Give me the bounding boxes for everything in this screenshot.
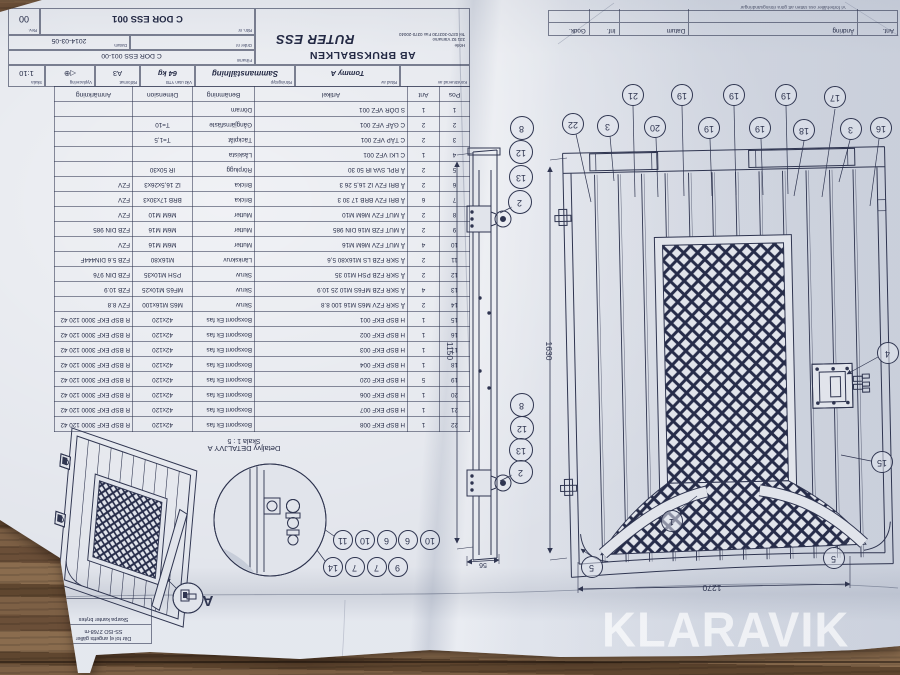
parts-cell: 42x120 <box>133 357 193 372</box>
parts-cell: Å MUT FZV M6M M16 <box>255 237 408 252</box>
address-line: 331 92 Värnamo <box>370 37 465 43</box>
callout-number: 5 <box>831 554 836 563</box>
drawing-type-label: Ritningstyp <box>271 80 292 85</box>
address-line: Tel 0370-303730 Fax 0370-20040 <box>370 32 465 38</box>
parts-cell: H BSP EKF 007 <box>255 402 408 417</box>
callout-balloon: 8 <box>510 116 534 140</box>
parts-cell: 22 <box>440 417 470 432</box>
parts-cell: Låskista <box>193 147 255 162</box>
parts-cell: 1 <box>408 387 440 402</box>
hinge-pin-hardware <box>555 209 577 495</box>
parts-table-body: 221H BSP EKF 008Boxspont Ek fas42x120R B… <box>55 87 470 432</box>
parts-cell <box>55 147 133 162</box>
detail-view-circle <box>214 464 326 576</box>
paper-wrap: 221H BSP EKF 008Boxspont Ek fas42x120R B… <box>0 0 900 675</box>
parts-cell: Skruv <box>193 282 255 297</box>
callout-balloon: 7 <box>367 557 387 577</box>
revision-empty-cell <box>589 9 619 22</box>
drawing-no-label: Ritn. nr <box>238 28 252 33</box>
callout-balloon: 2 <box>509 460 533 484</box>
parts-cell: FZB DIN 985 <box>55 222 133 237</box>
callout-balloon: 14 <box>323 557 343 577</box>
parts-cell: Boxspont Ek fas <box>193 357 255 372</box>
hinge-assembly-upper <box>467 206 511 232</box>
parts-cell: M6S M16x100 <box>133 297 193 312</box>
parts-cell: H BSP EKF 004 <box>255 357 408 372</box>
drawing-sheet: 221H BSP EKF 008Boxspont Ek fas42x120R B… <box>0 0 900 675</box>
parts-cell: FZB 5.6 DIN444F <box>55 252 133 267</box>
tolerance-note: Där tol ej angetts gäller SS-ISO 2768-m <box>56 624 151 643</box>
parts-cell: H BSP EKF 020 <box>255 372 408 387</box>
parts-cell: M16X80 <box>133 252 193 267</box>
parts-cell: 19 <box>440 372 470 387</box>
parts-cell: FZV 8.8 <box>55 297 133 312</box>
designed-by-label: Konstruerad av <box>438 80 467 85</box>
filename-value: C DOR ESS 001-00 <box>9 52 254 59</box>
parts-cell: 1 <box>408 402 440 417</box>
parts-cell: 9 <box>440 222 470 237</box>
callout-balloon: 19 <box>671 84 693 106</box>
parts-cell: 4 <box>440 147 470 162</box>
parts-cell: 1 <box>440 102 470 117</box>
parts-cell: 2 <box>408 267 440 282</box>
lock-box <box>812 363 870 408</box>
callout-number: 19 <box>755 124 765 133</box>
revision-header-cell: Inf. <box>589 22 619 35</box>
parts-cell: Boxspont Ek fas <box>193 312 255 327</box>
callout-balloon: 11 <box>333 530 353 550</box>
parts-header-cell: Ant <box>408 87 440 102</box>
parts-cell: 12 <box>440 267 470 282</box>
callout-number: 12 <box>517 424 527 433</box>
callout-number: 10 <box>360 536 370 545</box>
callout-number: 12 <box>516 148 526 157</box>
parts-cell: M6M M16 <box>133 222 193 237</box>
scale-value: 1:10 <box>9 69 44 78</box>
revision-header-cell: Godk. <box>549 22 589 35</box>
parts-cell: IR 50x30 <box>133 162 193 177</box>
parts-cell: Å BRI FZV BRB 17 30 3 <box>255 192 408 207</box>
rev-value: 00 <box>9 14 39 24</box>
parts-table: 221H BSP EKF 008Boxspont Ek fas42x120R B… <box>54 86 470 432</box>
parts-row: 92Å MUT FZB M16 DIN 985MutterM6M M16FZB … <box>55 222 470 237</box>
parts-cell: 11 <box>440 252 470 267</box>
weight-value: 64 kg <box>141 69 194 78</box>
edge-note: Skarpa kanter brytes <box>56 613 151 624</box>
parts-cell: M6M M16 <box>133 237 193 252</box>
parts-row: 76Å BRI FZV BRB 17 30 3BrickaBRB 17x30x3… <box>55 192 470 207</box>
callout-number: 16 <box>876 124 886 133</box>
parts-and-title-block: 221H BSP EKF 008Boxspont Ek fas42x120R B… <box>8 8 470 432</box>
callout-number: 18 <box>799 126 809 135</box>
parts-cell <box>55 132 133 147</box>
format-label: Ritformat <box>120 80 137 85</box>
hinge-mount-plate <box>749 148 855 167</box>
parts-row: 82Å MUT FZV M6M M10MutterM6M M10FZV <box>55 207 470 222</box>
parts-row: 11S DÖR VFZ 001Dörram <box>55 102 470 117</box>
parts-row: 22C GÅF VFZ 001GångjärnsfästeT=10 <box>55 117 470 132</box>
callout-balloon: 13 <box>509 165 533 189</box>
parts-row: 181H BSP EKF 004Boxspont Ek fas42x120R B… <box>55 357 470 372</box>
parts-cell: IZ 16,5x26x3 <box>133 177 193 192</box>
parts-row: 104Å MUT FZV M6M M16MutterM6M M16FZV <box>55 237 470 252</box>
parts-cell: 1 <box>408 147 440 162</box>
parts-cell: 6 <box>440 177 470 192</box>
photo-of-technical-drawing: 221H BSP EKF 008Boxspont Ek fas42x120R B… <box>0 0 900 675</box>
dimension-post-width: 56 <box>472 561 494 568</box>
gate-front-view <box>554 147 894 578</box>
callout-balloon: 12 <box>509 140 533 164</box>
parts-cell: FZV <box>55 237 133 252</box>
parts-cell: BRB 17x30x3 <box>133 192 193 207</box>
parts-cell: T=10 <box>133 117 193 132</box>
parts-row: 151H BSP EKF 001Boxspont Ek fas42x120R B… <box>55 312 470 327</box>
callout-number: 7 <box>352 563 357 572</box>
parts-cell: Boxspont Ek fas <box>193 342 255 357</box>
parts-cell: 21 <box>440 402 470 417</box>
klaravik-watermark: KLARAVIK <box>602 601 849 658</box>
parts-row: 32C TÄP VFZ 001TäckplåtT=1,5 <box>55 132 470 147</box>
callout-number: 19 <box>729 91 739 100</box>
callout-number: 2 <box>518 468 523 477</box>
parts-cell: 2 <box>408 222 440 237</box>
revision-table: Ant.ÄndringDatumInf.Godk. <box>548 10 898 36</box>
parts-cell: 1 <box>408 342 440 357</box>
callout-number: 8 <box>519 401 524 410</box>
callout-balloon: 1 <box>661 510 683 532</box>
callout-balloon: 4 <box>877 342 899 364</box>
order-no-label: Order nr <box>236 43 252 48</box>
callout-number: 9 <box>395 563 400 572</box>
parts-cell: 14 <box>440 297 470 312</box>
parts-header-cell: Pos <box>440 87 470 102</box>
parts-cell: M6M M10 <box>133 207 193 222</box>
parts-cell: R BSP EKF 3000 120 42 <box>55 402 133 417</box>
projection-symbol-icon: ◁⊕ <box>46 69 94 78</box>
parts-header-cell: Anmärkning <box>55 87 133 102</box>
parts-cell: Å SKR FZB MF6S M10 25 10.9 <box>255 282 408 297</box>
parts-cell: Boxspont Ek fas <box>193 327 255 342</box>
callout-balloon: 20 <box>644 116 666 138</box>
lattice-mesh <box>663 243 789 483</box>
callout-number: 6 <box>405 536 410 545</box>
parts-cell: C LKI VFZ 001 <box>255 147 408 162</box>
callout-number: 19 <box>781 91 791 100</box>
callout-number: 10 <box>425 536 435 545</box>
callout-balloon: 8 <box>510 393 534 417</box>
parts-cell: Å MUT FZV M6M M10 <box>255 207 408 222</box>
callout-balloon: 5 <box>581 556 603 578</box>
parts-cell: 1 <box>408 357 440 372</box>
parts-row: 142Å SKR FZV M6S M16 100 8.8SkruvM6S M16… <box>55 297 470 312</box>
parts-cell: Skruv <box>193 297 255 312</box>
parts-cell: 42x120 <box>133 402 193 417</box>
parts-cell: 4 <box>408 237 440 252</box>
callout-number: 13 <box>516 173 526 182</box>
callout-balloon: 19 <box>723 84 745 106</box>
parts-cell: Boxspont Ek fas <box>193 372 255 387</box>
parts-cell: 2 <box>408 297 440 312</box>
rev-label: Rev. <box>28 28 37 33</box>
parts-cell: Mutter <box>193 207 255 222</box>
parts-cell: 20 <box>440 387 470 402</box>
parts-cell: 1 <box>408 102 440 117</box>
callout-balloon: 21 <box>622 84 644 106</box>
callout-number: 3 <box>605 122 610 131</box>
parts-row: 161H BSP EKF 002Boxspont Ek fas42x120R B… <box>55 327 470 342</box>
parts-cell: 2 <box>408 132 440 147</box>
parts-cell: C TÄP VFZ 001 <box>255 132 408 147</box>
parts-cell: Å SKR FZV M6S M16 100 8.8 <box>255 297 408 312</box>
parts-cell: 5 <box>440 162 470 177</box>
callout-balloon: 10 <box>355 530 375 550</box>
drawing-title: RUTER ESS <box>260 32 370 47</box>
callout-number: 21 <box>628 91 638 100</box>
revision-note: Vi förbehåller oss rätten att göra ritni… <box>688 1 898 9</box>
callout-number: 8 <box>519 124 524 133</box>
dimension-leaf-height: 1150 <box>445 331 455 371</box>
revision-empty-cell <box>549 9 589 22</box>
parts-cell: Å SKR FZB LS M16X80 5,6 <box>255 252 408 267</box>
parts-cell: Bricka <box>193 192 255 207</box>
callout-balloon: 12 <box>510 416 534 440</box>
parts-cell: S DÖR VFZ 001 <box>255 102 408 117</box>
parts-header-cell: Artikel <box>255 87 408 102</box>
parts-cell <box>55 102 133 117</box>
callout-balloon: 22 <box>562 113 584 135</box>
parts-row: 41C LKI VFZ 001Låskista <box>55 147 470 162</box>
parts-cell: R BSP EKF 3000 120 42 <box>55 342 133 357</box>
revision-header-cell: Ändring <box>688 22 857 35</box>
parts-row: 122Å SKR FZB PSH M10 35SkruvPSH M10x35FZ… <box>55 267 470 282</box>
parts-cell: 42x120 <box>133 327 193 342</box>
parts-cell: 42x120 <box>133 417 193 432</box>
dimension-gate-width: 1270 <box>692 583 732 593</box>
parts-cell: PSH M10x35 <box>133 267 193 282</box>
parts-cell <box>133 147 193 162</box>
dimension-gate-height: 1630 <box>544 331 554 371</box>
parts-cell: 2 <box>408 162 440 177</box>
parts-row: 171H BSP EKF 003Boxspont Ek fas42x120R B… <box>55 342 470 357</box>
parts-cell: 6 <box>408 192 440 207</box>
gate-profile-view <box>467 148 511 560</box>
callout-number: 3 <box>848 125 853 134</box>
parts-row: 134Å SKR FZB MF6S M10 25 10.9SkruvMF6S M… <box>55 282 470 297</box>
callout-number: 1 <box>669 517 674 526</box>
callout-number: 6 <box>384 536 389 545</box>
parts-cell: Rörplugg <box>193 162 255 177</box>
revision-header-cell: Ant. <box>857 22 897 35</box>
parts-row: 62Å BRI FZV IZ 16,5 26 3BrickaIZ 16,5x26… <box>55 177 470 192</box>
view-placement-label: Vyplacering <box>70 80 92 85</box>
parts-cell: R BSP EKF 3000 120 42 <box>55 312 133 327</box>
parts-cell: H BSP EKF 003 <box>255 342 408 357</box>
callout-number: 2 <box>517 198 522 207</box>
parts-row: 211H BSP EKF 007Boxspont Ek fas42x120R B… <box>55 402 470 417</box>
parts-cell: 13 <box>440 282 470 297</box>
callout-number: 15 <box>877 458 887 467</box>
parts-cell: 7 <box>440 192 470 207</box>
revision-header-row: Ant.ÄndringDatumInf.Godk. <box>549 22 897 35</box>
callout-balloon: 15 <box>871 451 893 473</box>
parts-cell: 42x120 <box>133 387 193 402</box>
tolerance-notes: Där tol ej angetts gäller SS-ISO 2768-m … <box>55 598 152 644</box>
callout-balloon: 10 <box>420 530 440 550</box>
callout-balloon: 19 <box>749 117 771 139</box>
drawing-no-value: C DOR ESS 001 <box>41 13 254 24</box>
parts-cell: FZV <box>55 177 133 192</box>
callout-balloon: 13 <box>509 438 533 462</box>
parts-row: 201H BSP EKF 006Boxspont Ek fas42x120R B… <box>55 387 470 402</box>
parts-cell: FZV <box>55 192 133 207</box>
title-block: Konstruerad av Ritad av Tommy A Ritnings… <box>8 8 470 87</box>
parts-cell: 3 <box>440 132 470 147</box>
parts-cell: 5 <box>408 372 440 387</box>
parts-cell <box>55 117 133 132</box>
parts-cell: 15 <box>440 312 470 327</box>
format-value: A3 <box>96 69 139 78</box>
callout-balloon: 3 <box>597 115 619 137</box>
revision-empty-cell <box>688 9 857 22</box>
parts-cell: Mutter <box>193 237 255 252</box>
drawing-type-value: Sammanställning <box>196 69 294 78</box>
company-name: AB BRUKSBALKEN <box>256 49 469 61</box>
callout-number: 13 <box>516 446 526 455</box>
parts-cell: Å MUT FZB M16 DIN 985 <box>255 222 408 237</box>
hinge-assembly-lower <box>467 470 511 496</box>
callout-number: 19 <box>677 91 687 100</box>
callout-balloon: 7 <box>345 557 365 577</box>
parts-row: 195H BSP EKF 020Boxspont Ek fas42x120R B… <box>55 372 470 387</box>
parts-cell: 1 <box>408 312 440 327</box>
parts-cell: 2 <box>408 252 440 267</box>
sheet-corner-mark <box>27 652 49 670</box>
parts-cell: 2 <box>440 117 470 132</box>
date-value: 2014-03-05 <box>9 37 129 44</box>
parts-cell: R BSP EKF 3000 120 42 <box>55 387 133 402</box>
callout-number: 17 <box>830 93 840 102</box>
parts-cell: Mutter <box>193 222 255 237</box>
parts-cell: 8 <box>440 207 470 222</box>
parts-header-cell: Dimension <box>133 87 193 102</box>
callout-balloon: 19 <box>775 84 797 106</box>
parts-cell: H BSP EKF 006 <box>255 387 408 402</box>
callout-balloon: 19 <box>698 117 720 139</box>
parts-cell: 42x120 <box>133 342 193 357</box>
parts-cell: T=1,5 <box>133 132 193 147</box>
parts-row: 112Å SKR FZB LS M16X80 5,6LänkskruvM16X8… <box>55 252 470 267</box>
parts-cell: FZV <box>55 207 133 222</box>
detail-view-title: Detaljvy DETALJVY A <box>185 444 303 453</box>
detail-view-caption: Detaljvy DETALJVY A Skala 1 : 5 <box>185 427 303 453</box>
callout-number: 5 <box>589 563 594 572</box>
parts-cell: FZB 10.9 <box>55 282 133 297</box>
address-line: Hörle <box>370 43 465 49</box>
parts-cell <box>55 162 133 177</box>
parts-cell: 2 <box>408 207 440 222</box>
callout-number: 20 <box>650 123 660 132</box>
tolerance-line: Där tol ej angetts gäller <box>57 634 150 641</box>
parts-cell: Länkskruv <box>193 252 255 267</box>
parts-header-cell: Benämning <box>193 87 255 102</box>
view-marker-letter: A <box>196 589 220 609</box>
parts-cell: R BSP EKF 3000 120 42 <box>55 327 133 342</box>
callout-balloon: 9 <box>388 557 408 577</box>
parts-cell: H BSP EKF 001 <box>255 312 408 327</box>
callout-balloon: 18 <box>793 119 815 141</box>
parts-cell: 2 <box>408 117 440 132</box>
parts-cell: FZB DIN 976 <box>55 267 133 282</box>
parts-cell: Gångjärnsfäste <box>193 117 255 132</box>
revision-empty-cell <box>619 9 689 22</box>
callout-number: 4 <box>885 349 890 358</box>
callout-number: 14 <box>328 563 338 572</box>
parts-cell: 1 <box>408 417 440 432</box>
tolerance-line: SS-ISO 2768-m <box>57 627 150 634</box>
parts-cell: Täckplåt <box>193 132 255 147</box>
parts-cell: Å RPL SVA IR 50 30 <box>255 162 408 177</box>
parts-cell: Bricka <box>193 177 255 192</box>
callout-balloon: 17 <box>824 86 846 108</box>
parts-cell: 10 <box>440 237 470 252</box>
parts-header-row: PosAntArtikelBenämningDimensionAnmärknin… <box>55 87 470 102</box>
parts-cell: 4 <box>408 282 440 297</box>
parts-cell: R BSP EKF 3000 120 42 <box>55 372 133 387</box>
parts-cell: R BSP EKF 3000 120 42 <box>55 357 133 372</box>
callout-balloon: 16 <box>870 117 892 139</box>
parts-cell: Å BRI FZV IZ 16,5 26 3 <box>255 177 408 192</box>
drawn-by-label: Ritad av <box>381 80 397 85</box>
detail-view-scale: Skala 1 : 5 <box>185 437 303 444</box>
hinge-mount-plate <box>590 152 658 170</box>
callout-balloon: 5 <box>823 547 845 569</box>
parts-cell: Dörram <box>193 102 255 117</box>
revision-empty-cell <box>857 9 897 22</box>
callout-number: 19 <box>704 124 714 133</box>
callout-balloon: 6 <box>398 530 418 550</box>
callout-number: 7 <box>374 563 379 572</box>
callout-balloon: 2 <box>508 190 532 214</box>
drawn-by-value: Tommy A <box>296 69 399 78</box>
callout-number: 11 <box>338 536 347 545</box>
company-address: Hörle 331 92 Värnamo Tel 0370-303730 Fax… <box>370 32 465 49</box>
parts-row: 52Å RPL SVA IR 50 30RörpluggIR 50x30 <box>55 162 470 177</box>
revision-empty-row <box>549 9 897 22</box>
weight-label: Vikt utan YTB <box>166 80 192 85</box>
parts-cell: Boxspont Ek fas <box>193 402 255 417</box>
parts-cell: Skruv <box>193 267 255 282</box>
parts-cell: C GÅF VFZ 001 <box>255 117 408 132</box>
callout-balloon: 6 <box>377 530 397 550</box>
parts-cell: 2 <box>408 177 440 192</box>
parts-cell <box>133 102 193 117</box>
parts-cell: 1 <box>408 327 440 342</box>
parts-cell: Boxspont Ek fas <box>193 387 255 402</box>
parts-cell: 42x120 <box>133 372 193 387</box>
callout-balloon: 3 <box>840 118 862 140</box>
revision-header-cell: Datum <box>619 22 689 35</box>
parts-cell: 42x120 <box>133 312 193 327</box>
parts-cell: Å SKR FZB PSH M10 35 <box>255 267 408 282</box>
parts-cell: H BSP EKF 002 <box>255 327 408 342</box>
scale-label: Skala <box>31 80 42 85</box>
callout-number: 22 <box>568 120 578 129</box>
parts-cell: MF6S M10x25 <box>133 282 193 297</box>
parts-cell: R BSP EKF 3000 120 42 <box>55 417 133 432</box>
